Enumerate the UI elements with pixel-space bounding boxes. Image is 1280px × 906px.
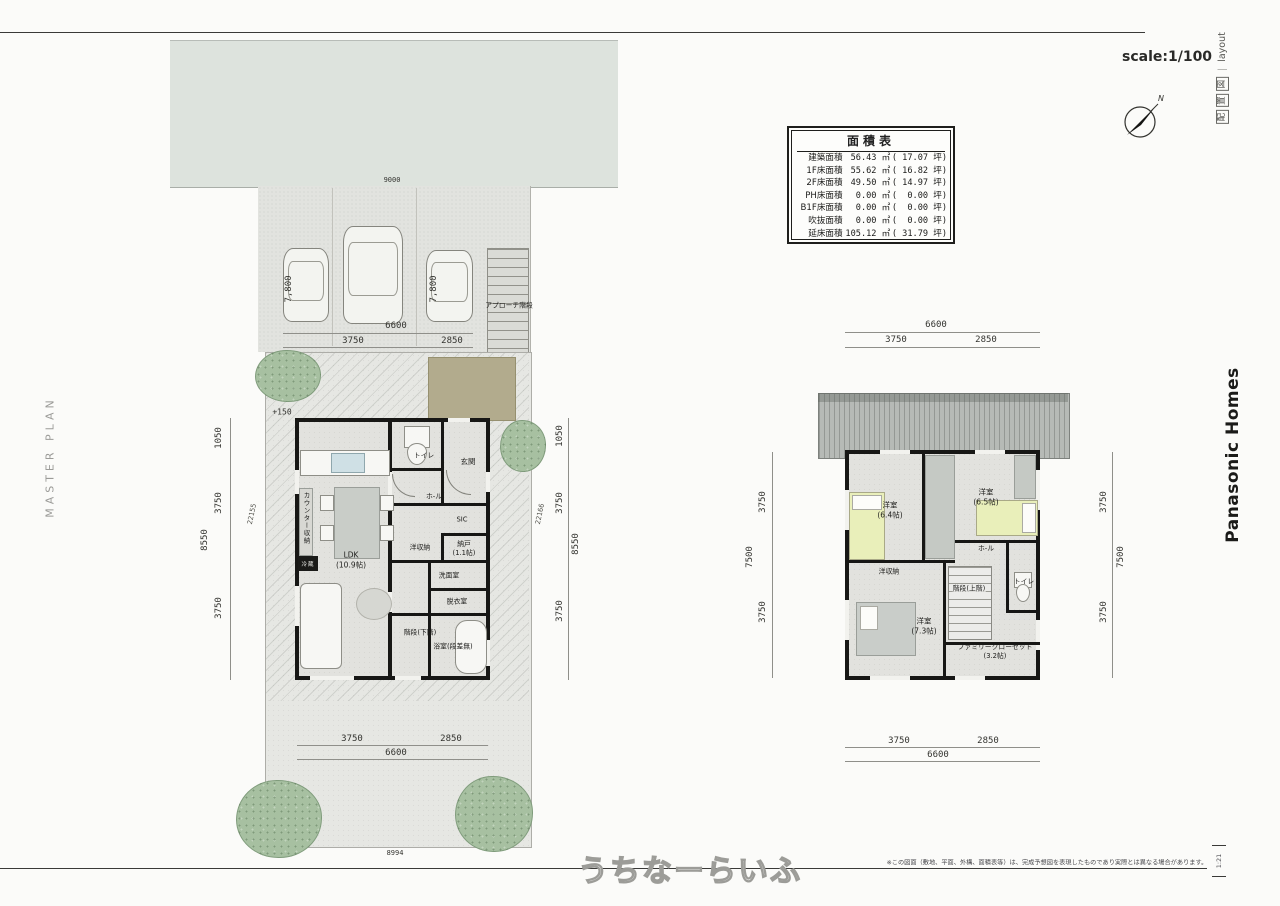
sheet-title-kanji: 配 xyxy=(1216,110,1229,124)
room-label-bath: 浴室(段差無) xyxy=(433,643,472,652)
area-row-tsubo: ( 0.00 坪) xyxy=(890,190,947,203)
stall-depth-dim: 7,800 xyxy=(284,275,294,302)
dining-table xyxy=(334,487,380,559)
area-table-row: 1F床面積 55.62 ㎡ ( 16.82 坪) xyxy=(795,165,947,178)
roof-ridge xyxy=(818,393,1068,402)
area-row-value: 55.62 ㎡ xyxy=(843,165,891,178)
f2-dim: 2850 xyxy=(975,335,997,345)
watermark-logo: うちなーらいふ xyxy=(578,846,802,890)
room-label-sic: SIC xyxy=(456,516,467,525)
closet-column xyxy=(925,455,955,559)
dim-line xyxy=(568,418,569,680)
f1-dim-total: 6600 xyxy=(385,748,407,758)
parking-width-dim: 3750 xyxy=(342,336,364,346)
area-row-tsubo: ( 0.00 坪) xyxy=(890,202,947,215)
f1-dim: 3750 xyxy=(555,600,565,622)
dim-line xyxy=(772,452,773,678)
room-label-toilet: トイレ xyxy=(414,452,434,461)
stairs-up xyxy=(948,566,992,640)
sheet-title-vertical: 配 置 図 ｜ layout xyxy=(1215,32,1229,124)
area-table-row: 建築面積 56.43 ㎡ ( 17.07 坪) xyxy=(795,152,947,165)
north-compass: N xyxy=(1120,96,1170,142)
room-label-hall: ホ-ル xyxy=(426,493,442,502)
room-label-toilet2: トイレ xyxy=(1014,578,1034,587)
area-table-row: PH床面積 0.00 ㎡ ( 0.00 坪) xyxy=(795,190,947,203)
road-width-dim: 9000 xyxy=(384,176,401,184)
area-table-title: 面積表 xyxy=(797,131,945,152)
area-row-tsubo: ( 17.07 坪) xyxy=(890,152,947,165)
f2-dim: 3750 xyxy=(888,736,910,746)
approach-stairs-label: アプローチ階段 xyxy=(485,302,533,311)
room-label-bed2: 洋室 (6.5帖) xyxy=(973,487,998,507)
f2-dim: 3750 xyxy=(1099,491,1109,513)
dim-line xyxy=(845,747,1040,748)
f1-dim: 3750 xyxy=(341,734,363,744)
company-logo-text: Panasonic Homes xyxy=(1223,367,1243,543)
room-label-closet: 洋収納 xyxy=(410,544,430,553)
f1-dim: 3750 xyxy=(214,492,224,514)
rug xyxy=(356,588,392,620)
area-row-value: 0.00 ㎡ xyxy=(843,190,891,203)
window-gap xyxy=(486,472,490,492)
wall-segment xyxy=(441,533,488,536)
area-row-value: 105.12 ㎡ xyxy=(843,228,891,241)
f2-dim-total: 7500 xyxy=(745,546,755,568)
compass-n-label: N xyxy=(1158,94,1164,103)
window-gap xyxy=(295,586,299,626)
f2-dim-total: 7500 xyxy=(1116,546,1126,568)
area-table-row: 2F床面積 49.50 ㎡ ( 14.97 坪) xyxy=(795,177,947,190)
sheet-title-kanji: 置 xyxy=(1216,94,1229,108)
master-plan-label: MASTER PLAN xyxy=(44,396,57,518)
area-row-label: 建築面積 xyxy=(795,152,843,165)
drawing-sheet: scale:1/100 配 置 図 ｜ layout N MASTER PLAN… xyxy=(0,0,1280,906)
f2-dim: 3750 xyxy=(758,491,768,513)
wall-segment xyxy=(845,560,955,563)
stall-depth-dim: 7,800 xyxy=(429,275,439,302)
window-gap xyxy=(310,676,354,680)
f1-dim: 3750 xyxy=(555,492,565,514)
f1-dim: 1050 xyxy=(214,427,224,449)
f2-dim: 3750 xyxy=(758,601,768,623)
area-row-label: 1F床面積 xyxy=(795,165,843,178)
page-mark-tick-top xyxy=(1212,845,1226,846)
bed-pillow xyxy=(860,606,878,630)
stall-divider xyxy=(332,188,333,346)
area-table-row: B1F床面積 0.00 ㎡ ( 0.00 坪) xyxy=(795,202,947,215)
page-mark-tick-bottom xyxy=(1212,876,1226,877)
wall-segment xyxy=(943,560,946,680)
disclaimer-text: ※この図面（敷地、平面、外構、面積表等）は、完成予想図を表現したものであり実際と… xyxy=(886,857,1207,866)
area-table-row: 延床面積 105.12 ㎡ ( 31.79 坪) xyxy=(795,228,947,241)
room-label-bed3: 洋室 (7.3帖) xyxy=(911,616,936,636)
stall-divider xyxy=(416,188,417,346)
room-label-datsui: 脱衣室 xyxy=(447,598,467,607)
wall-segment xyxy=(953,540,1040,543)
window-gap xyxy=(975,450,1005,454)
dim-line xyxy=(230,418,231,680)
tree xyxy=(236,780,322,858)
area-row-label: 吹抜面積 xyxy=(795,215,843,228)
wall-segment xyxy=(390,613,488,616)
area-row-label: 延床面積 xyxy=(795,228,843,241)
south-boundary-dim: 8994 xyxy=(387,849,404,857)
refrigerator: 冷蔵 xyxy=(298,556,318,571)
room-label-nando: 納戸 (1.1帖) xyxy=(453,540,476,558)
f1-dim-total: 8550 xyxy=(200,529,210,551)
area-row-value: 0.00 ㎡ xyxy=(843,202,891,215)
wall-segment xyxy=(845,450,1040,454)
bed-pillow xyxy=(1022,503,1036,533)
site-diagonal-dim: 22155 xyxy=(246,503,258,525)
f2-dim: 3750 xyxy=(885,335,907,345)
sheet-title-separator: ｜ xyxy=(1215,65,1229,75)
closet xyxy=(1014,455,1036,499)
chair xyxy=(320,495,334,511)
counter-storage-label: カウンター収納 xyxy=(301,492,311,562)
room-label-stairs-up: 階段(上階) xyxy=(953,585,986,594)
chair xyxy=(320,525,334,541)
window-gap xyxy=(955,676,985,680)
sheet-title-en: layout xyxy=(1217,32,1228,62)
room-label-family-closet: ファミリークローゼット (3.2帖) xyxy=(958,643,1033,661)
window-gap xyxy=(1036,620,1040,650)
f1-dim: 3750 xyxy=(214,597,224,619)
room-label-senmen: 洗面室 xyxy=(439,572,459,581)
area-row-tsubo: ( 16.82 坪) xyxy=(890,165,947,178)
scale-label: scale:1/100 xyxy=(1122,49,1212,65)
ground-level-mark: +150 xyxy=(272,408,291,417)
window-gap xyxy=(880,450,910,454)
wall-segment xyxy=(845,450,849,680)
dim-line xyxy=(297,759,488,760)
wall-segment xyxy=(390,503,488,506)
dim-line xyxy=(845,347,1040,348)
top-rule xyxy=(0,32,1145,33)
room-label-hall2: ホ-ル xyxy=(978,545,994,554)
sofa xyxy=(300,583,342,669)
f1-dim-total: 8550 xyxy=(571,533,581,555)
f1-dim: 2850 xyxy=(440,734,462,744)
wall-segment xyxy=(390,560,488,563)
road-area xyxy=(170,40,618,188)
room-label-stairs-down: 階段(下階) xyxy=(404,629,437,638)
chair xyxy=(380,525,394,541)
entrance-door-gap xyxy=(448,418,470,422)
window-gap xyxy=(870,676,910,680)
area-table: 面積表 建築面積 56.43 ㎡ ( 17.07 坪) 1F床面積 55.62 … xyxy=(787,126,955,244)
sheet-title-kanji: 図 xyxy=(1216,77,1229,91)
window-gap xyxy=(395,676,421,680)
entrance-porch xyxy=(428,357,516,421)
wall-segment xyxy=(390,468,442,471)
tree xyxy=(455,776,533,852)
room-label-ldk: LDK (10.9帖) xyxy=(336,550,366,570)
area-table-row: 吹抜面積 0.00 ㎡ ( 0.00 坪) xyxy=(795,215,947,228)
dim-line xyxy=(845,332,1040,333)
dim-line xyxy=(283,347,473,348)
wall-segment xyxy=(428,560,431,680)
parking-width-total-dim: 6600 xyxy=(385,321,407,331)
car-outline xyxy=(343,226,403,324)
f2-dim: 3750 xyxy=(1099,601,1109,623)
tree xyxy=(255,350,321,402)
f1-dim: 1050 xyxy=(555,425,565,447)
dim-line xyxy=(1112,452,1113,678)
area-row-label: B1F床面積 xyxy=(795,202,843,215)
area-row-tsubo: ( 0.00 坪) xyxy=(890,215,947,228)
wall-segment xyxy=(1006,542,1009,612)
room-label-genkan: 玄関 xyxy=(461,457,476,467)
f2-dim-total: 6600 xyxy=(925,320,947,330)
area-row-tsubo: ( 31.79 坪) xyxy=(890,228,947,241)
wall-segment xyxy=(441,533,444,562)
chair xyxy=(380,495,394,511)
area-row-value: 49.50 ㎡ xyxy=(843,177,891,190)
window-gap xyxy=(845,600,849,640)
area-row-tsubo: ( 14.97 坪) xyxy=(890,177,947,190)
parking-width-dim: 2850 xyxy=(441,336,463,346)
dim-line xyxy=(845,761,1040,762)
area-row-label: 2F床面積 xyxy=(795,177,843,190)
page-mark: 1:21 xyxy=(1215,854,1223,869)
kitchen-sink xyxy=(331,453,365,473)
dim-line xyxy=(283,333,473,334)
wall-segment xyxy=(428,588,488,591)
area-row-value: 0.00 ㎡ xyxy=(843,215,891,228)
room-label-closet2: 洋収納 xyxy=(879,568,899,577)
area-row-value: 56.43 ㎡ xyxy=(843,152,891,165)
f2-dim: 2850 xyxy=(977,736,999,746)
dim-line xyxy=(297,745,488,746)
room-label-bed1: 洋室 (6.4帖) xyxy=(877,500,902,520)
area-row-label: PH床面積 xyxy=(795,190,843,203)
tree xyxy=(500,420,546,472)
f2-dim-total: 6600 xyxy=(927,750,949,760)
wall-segment xyxy=(1006,610,1040,613)
site-diagonal-dim: 22166 xyxy=(534,503,546,525)
